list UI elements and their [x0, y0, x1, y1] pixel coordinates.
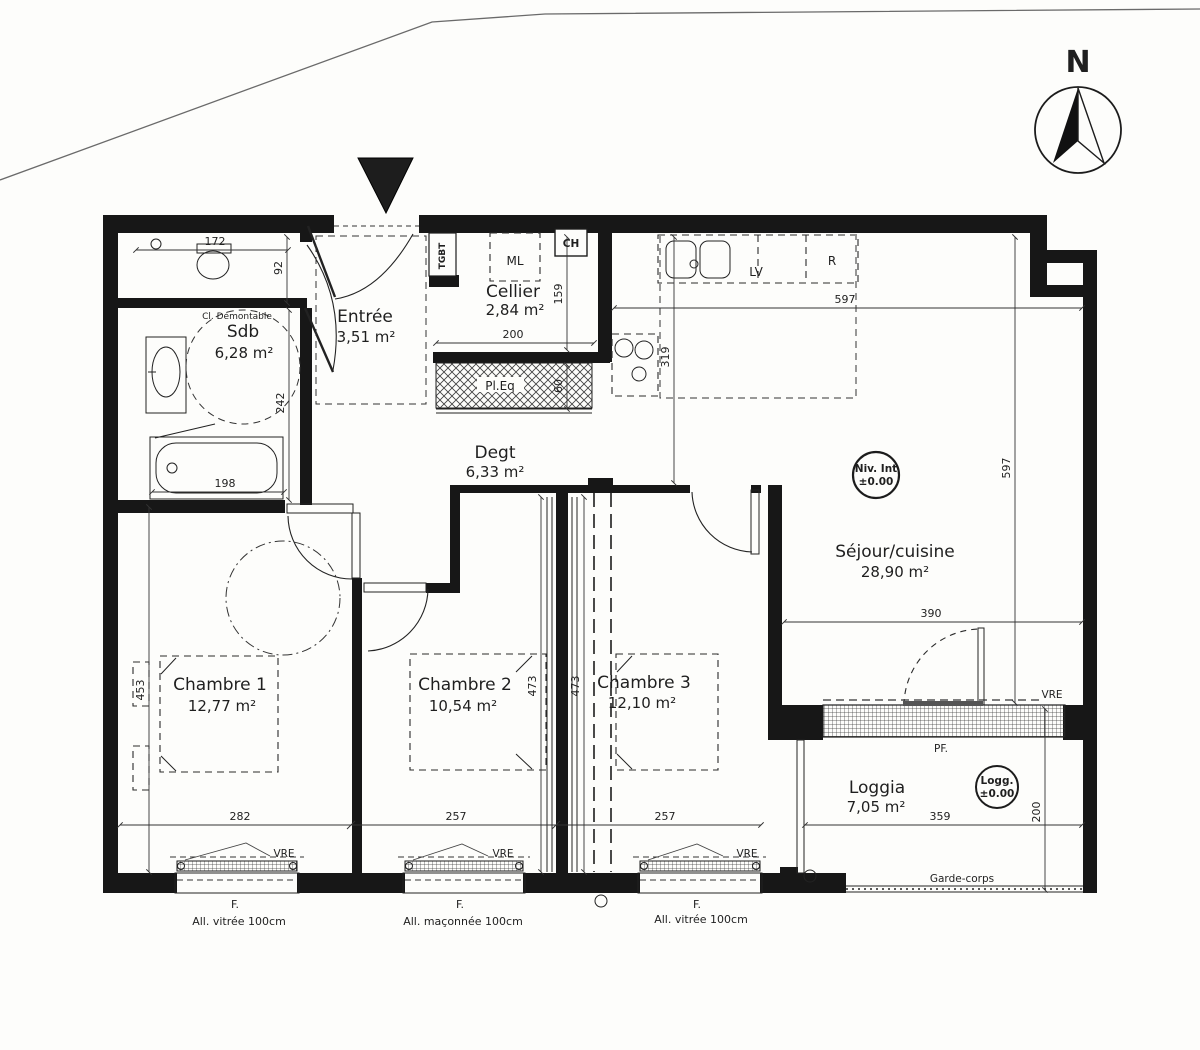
window-sill-hatch [640, 861, 760, 871]
label-fridge: R [828, 254, 836, 268]
loggia-elements [797, 700, 1083, 892]
north-compass: N [1035, 45, 1121, 173]
annotation-labels: Cl. Démontable TGBT ML CH LV R Pl.Eq PF.… [192, 238, 1062, 928]
pf-leaf [903, 701, 983, 706]
window-opening-3 [640, 871, 760, 895]
dim-sejour-width: 597 [835, 293, 856, 306]
dim-cellier-depth: 159 [552, 284, 565, 305]
wall-loggia-corner [780, 867, 798, 877]
dim-loggia-width: 359 [930, 810, 951, 823]
label-cellier-area: 2,84 m² [486, 301, 545, 319]
loggia-door-arc [904, 629, 981, 705]
ch1-door-head [287, 504, 353, 513]
label-entree-area: 3,51 m² [337, 328, 396, 346]
sink-faucet-icon [690, 260, 698, 268]
label-sdb-name: Sdb [227, 322, 259, 342]
label-entree-name: Entrée [337, 307, 393, 327]
wall-degt-south-b [610, 485, 690, 493]
ch1-door-jamb [352, 513, 360, 578]
dim-ch1-depth: 453 [134, 680, 147, 701]
drain-icon [595, 895, 607, 907]
dim-ch3-depth: 473 [569, 676, 582, 697]
label-niv-int: Niv. Int [855, 463, 897, 475]
floorplan-page: N [0, 0, 1200, 1050]
wall-top-b [419, 215, 1030, 233]
label-vre-1: VRE [273, 848, 294, 860]
label-cl-demontable: Cl. Démontable [202, 311, 272, 322]
label-f-2: F. [456, 898, 464, 911]
label-pf: PF. [934, 743, 948, 755]
pf-sliding-door-hatch [823, 705, 1065, 737]
label-vre-2: VRE [492, 848, 513, 860]
wall-ch2-ch3 [556, 493, 568, 875]
label-cellier-name: Cellier [486, 282, 540, 302]
label-sejour-area: 28,90 m² [861, 563, 929, 581]
label-lv: LV [749, 265, 763, 279]
compass-needle-light [1078, 88, 1104, 163]
niv-int-circle [853, 452, 899, 498]
counter-dividers [758, 235, 806, 283]
wall-sdb-side [300, 308, 312, 505]
label-degt-name: Degt [474, 443, 515, 463]
label-all-vitree-2: All. vitrée 100cm [654, 913, 748, 926]
label-loggia-name: Loggia [849, 778, 905, 798]
dim-wc-width: 172 [205, 235, 226, 248]
wc-toilet-icon [197, 251, 229, 279]
window-opening-2 [405, 871, 523, 895]
label-vre-loggia: VRE [1041, 689, 1062, 701]
ch2-door-arc [368, 589, 428, 651]
label-loggia-area: 7,05 m² [847, 798, 906, 816]
wall-ch2-step-v [450, 485, 460, 593]
label-logg: Logg. [981, 775, 1014, 787]
hob-burner-2 [635, 341, 653, 359]
sink-basin-right [700, 241, 730, 278]
wall-kitchen-cellier [598, 233, 612, 362]
label-logg-val: ±0.00 [980, 788, 1015, 800]
pipe-icon [151, 239, 161, 249]
vre-leader [648, 844, 723, 860]
vre-leader [185, 843, 270, 860]
label-all-vitree-1: All. vitrée 100cm [192, 915, 286, 928]
dim-cuisine-depth: 319 [659, 347, 672, 368]
dim-wc-depth: 92 [272, 261, 285, 275]
label-vre-3: VRE [736, 848, 757, 860]
label-ch3-area: 12,10 m² [608, 694, 676, 712]
ch3-door-leaf [751, 490, 759, 554]
entrance-arrow-icon [358, 158, 413, 213]
logg-circle [976, 766, 1018, 808]
label-niv-val: ±0.00 [859, 476, 894, 488]
wall-loggia-right-block [1063, 705, 1085, 740]
label-ch2-area: 10,54 m² [429, 697, 497, 715]
wall-degt-south-a [450, 485, 590, 493]
bed1-table-bottom [133, 746, 149, 790]
dim-bath-length: 198 [215, 477, 236, 490]
ch1-door-arc [288, 516, 352, 579]
window-sill-hatch [177, 861, 297, 871]
ch1-turning-circle [226, 541, 340, 655]
label-sdb-area: 6,28 m² [215, 344, 274, 362]
dim-ch2-width: 257 [446, 810, 467, 823]
dim-sejour-loggia-width: 390 [921, 607, 942, 620]
hob-burner-1 [615, 339, 633, 357]
dim-loggia-depth: 200 [1030, 802, 1043, 823]
bathroom-fixtures [146, 239, 300, 499]
dim-pleq-depth: 60 [552, 379, 565, 393]
wall-top-a [103, 215, 334, 233]
bed2-fold-marks [516, 656, 532, 769]
loggia-west-wall [797, 740, 804, 873]
label-tgbt: TGBT [438, 242, 448, 269]
wall-ch1-ch2 [352, 578, 362, 875]
dim-cellier-width: 200 [503, 328, 524, 341]
pleq-front-lines [436, 409, 592, 413]
compass-needle-dark [1053, 88, 1078, 163]
wall-left [103, 215, 118, 893]
window-opening-1 [177, 871, 297, 895]
dim-sdb-depth: 242 [274, 393, 287, 414]
bed-chambre3 [616, 654, 718, 770]
dim-ch2-depth: 473 [526, 676, 539, 697]
label-pleq: Pl.Eq [485, 379, 515, 393]
wall-wc-partition [107, 298, 307, 308]
label-all-maconnee: All. maçonnée 100cm [403, 915, 523, 928]
loggia-door-leaf [978, 628, 984, 705]
window-sill-hatch [405, 861, 523, 871]
wall-ch3-sejour [768, 485, 782, 707]
wall-right [1083, 250, 1097, 893]
label-f-1: F. [231, 898, 239, 911]
label-ch1-area: 12,77 m² [188, 697, 256, 715]
entry-door-arc [335, 234, 413, 299]
ch3-door-arc [692, 492, 752, 552]
wall-cellier-south [433, 352, 610, 363]
entry-door-leaf [308, 226, 335, 297]
beds [133, 541, 718, 790]
hob-burner-3 [632, 367, 646, 381]
ch2-door-head [364, 583, 426, 592]
wall-sdb-south [103, 500, 285, 513]
label-degt-area: 6,33 m² [466, 463, 525, 481]
dim-ch1-width: 282 [230, 810, 251, 823]
bathtub-drain [167, 463, 177, 473]
label-sejour-name: Séjour/cuisine [835, 542, 955, 562]
label-ml: ML [506, 254, 523, 268]
wall-partition-block [588, 478, 613, 493]
sink-basin-left [666, 241, 696, 278]
garde-corps-lines [846, 886, 1083, 892]
label-ch1-name: Chambre 1 [173, 675, 267, 695]
wall-tgbt-stub [429, 275, 459, 287]
wall-loggia-left-block [768, 705, 823, 740]
bath-screen-line [155, 424, 215, 438]
label-f-3: F. [693, 898, 701, 911]
label-ch-boiler: CH [563, 238, 580, 250]
site-boundary-line [0, 9, 1200, 180]
dim-ch3-width: 257 [655, 810, 676, 823]
hob-outline [612, 334, 658, 396]
label-ch3-name: Chambre 3 [597, 673, 691, 693]
dim-sejour-depth: 597 [1000, 458, 1013, 479]
vre-leader [413, 844, 488, 860]
north-label: N [1065, 45, 1090, 80]
label-ch2-name: Chambre 2 [418, 675, 512, 695]
label-garde-corps: Garde-corps [930, 873, 994, 885]
washbasin-icon [152, 347, 180, 397]
floorplan-drawing: N [0, 0, 1200, 1050]
